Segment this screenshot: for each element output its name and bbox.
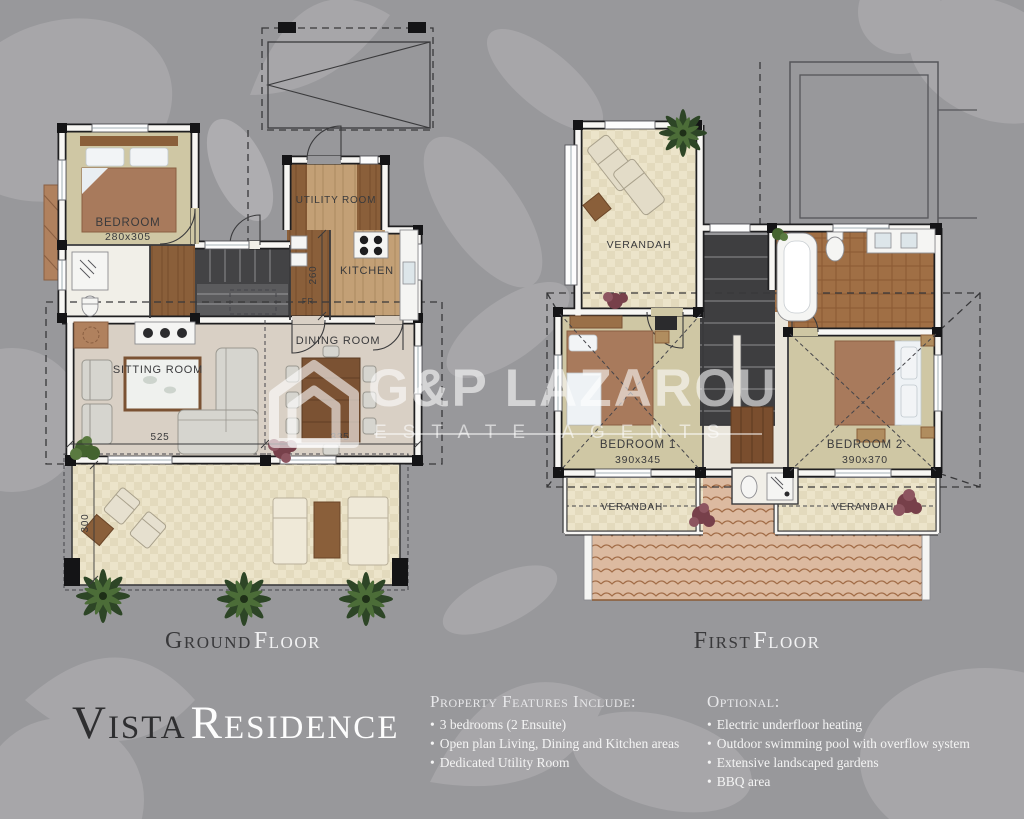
- roof-outline: [760, 62, 977, 232]
- optional-item: •Extensive landscaped gardens: [707, 753, 1017, 772]
- first-floor-caption: FirstFloor: [632, 628, 882, 655]
- feature-item: •Open plan Living, Dining and Kitchen ar…: [430, 734, 702, 753]
- label-bedroom2: BEDROOM 2: [827, 439, 903, 451]
- label-bedroom-dims: 280x305: [105, 231, 151, 243]
- hall-floor: [150, 245, 195, 318]
- label-verandah-top: VERANDAH: [607, 239, 672, 251]
- label-sitting-room: SITTING ROOM: [113, 364, 203, 376]
- property-features-section: Property Features Include: •3 bedrooms (…: [430, 692, 702, 772]
- optional-text: Extensive landscaped gardens: [717, 755, 879, 770]
- label-bedroom2-dims: 390x370: [842, 454, 888, 466]
- label-kitchen: KITCHEN: [340, 265, 394, 277]
- optional-item: •BBQ area: [707, 772, 1017, 791]
- bullet-icon: •: [707, 755, 712, 770]
- caption-first-word1: First: [694, 628, 752, 654]
- caption-ground-word1: Ground: [165, 628, 252, 654]
- dim-335: 335: [330, 432, 349, 443]
- brochure-page: BEDROOM 280x305 UTILITY ROOM KITCHEN FR …: [0, 0, 1024, 819]
- label-bedroom1-dims: 390x345: [615, 454, 661, 466]
- caption-ground-word2: Floor: [254, 628, 321, 654]
- bullet-icon: •: [430, 755, 435, 770]
- bullet-icon: •: [430, 717, 435, 732]
- optional-item: •Electric underfloor heating: [707, 715, 1017, 734]
- bullet-icon: •: [707, 717, 712, 732]
- feature-item: •Dedicated Utility Room: [430, 753, 702, 772]
- dim-260: 260: [308, 265, 319, 284]
- optional-item: •Outdoor swimming pool with overflow sys…: [707, 734, 1017, 753]
- page-title: VistaResidence: [72, 696, 399, 750]
- feature-item: •3 bedrooms (2 Ensuite): [430, 715, 702, 734]
- bullet-icon: •: [707, 736, 712, 751]
- label-bedroom: BEDROOM: [95, 217, 160, 229]
- staircase-first: [700, 235, 775, 431]
- dim-300: 300: [80, 513, 91, 532]
- ground-floor-plan: BEDROOM 280x305 UTILITY ROOM KITCHEN FR …: [30, 10, 450, 635]
- feature-text: Dedicated Utility Room: [440, 755, 570, 770]
- optional-text: BBQ area: [717, 774, 771, 789]
- label-fridge: FR: [302, 297, 314, 306]
- caption-first-word2: Floor: [753, 628, 820, 654]
- wardrobe: [731, 407, 773, 463]
- label-dining-room: DINING ROOM: [296, 335, 381, 347]
- staircase: [195, 245, 290, 320]
- label-bedroom1: BEDROOM 1: [600, 439, 676, 451]
- dim-525: 525: [150, 432, 169, 443]
- ground-floor-caption: GroundFloor: [118, 628, 368, 655]
- title-word1: Vista: [72, 697, 187, 749]
- first-floor-plan: VERANDAH BEDROOM 1 390x345 BEDROOM 2 390…: [535, 35, 990, 635]
- label-verandah-left: VERANDAH: [601, 502, 663, 513]
- optional-features-section: Optional: •Electric underfloor heating •…: [707, 692, 1017, 792]
- optional-text: Outdoor swimming pool with overflow syst…: [717, 736, 970, 751]
- optional-list: •Electric underfloor heating •Outdoor sw…: [707, 715, 1017, 792]
- features-heading: Property Features Include:: [430, 692, 702, 712]
- label-verandah-right: VERANDAH: [832, 502, 894, 513]
- feature-text: 3 bedrooms (2 Ensuite): [440, 717, 566, 732]
- bullet-icon: •: [707, 774, 712, 789]
- label-utility-room: UTILITY ROOM: [296, 195, 377, 206]
- bullet-icon: •: [430, 736, 435, 751]
- optional-heading: Optional:: [707, 692, 1017, 712]
- feature-text: Open plan Living, Dining and Kitchen are…: [440, 736, 680, 751]
- features-list: •3 bedrooms (2 Ensuite) •Open plan Livin…: [430, 715, 702, 772]
- roof-band: [592, 533, 922, 600]
- optional-text: Electric underfloor heating: [717, 717, 862, 732]
- title-word2: Residence: [191, 697, 400, 749]
